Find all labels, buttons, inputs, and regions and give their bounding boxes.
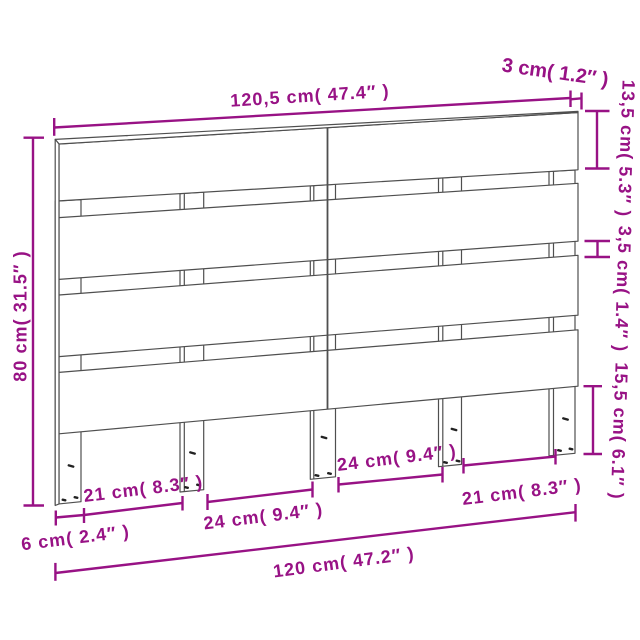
svg-text:80 cm( 31.5″ ): 80 cm( 31.5″ ) [10, 250, 30, 381]
